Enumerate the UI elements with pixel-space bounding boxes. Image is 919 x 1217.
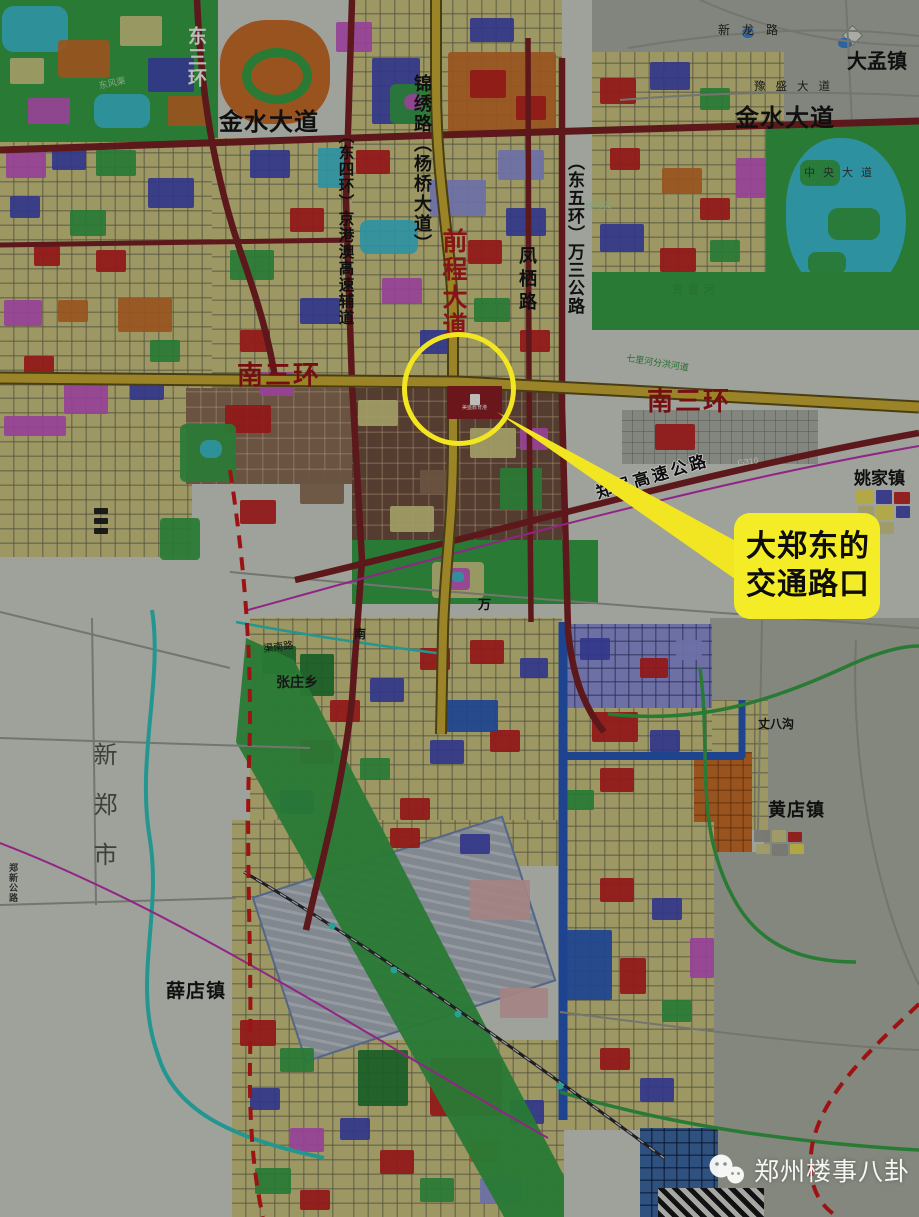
city-label-xinzheng: 新郑市 — [90, 742, 114, 892]
road-label-jinshui-east: 金水大道 — [735, 107, 835, 131]
map-roads — [0, 0, 919, 1217]
town-label-dameng: 大孟镇 — [847, 52, 907, 72]
arterial-roads — [0, 0, 919, 930]
blue-canals — [563, 622, 744, 1120]
road-label-east-third-ring: 东三环 — [186, 26, 205, 89]
zhengmin-expressway-road — [295, 433, 919, 580]
town-label-zhangzhuang: 张庄乡 — [276, 675, 318, 689]
char-label-nan: 南 — [354, 628, 366, 640]
town-label-yaojia: 姚家镇 — [854, 470, 905, 487]
minor-gray-roads — [0, 0, 919, 1050]
ditch-label-zhangba: 丈八沟 — [758, 718, 794, 730]
river-label-jialu: 贾鲁河 — [672, 285, 720, 296]
town-label-xuedian: 薛店镇 — [166, 982, 226, 1001]
road-label-jinxiu: 锦绣路（杨桥大道） — [413, 74, 431, 254]
town-label-huangdian: 黄店镇 — [768, 801, 825, 819]
road-label-central-ave: 中央大道 — [804, 168, 880, 179]
planning-map: 美盛教育港 东三环 金水大道 锦绣路（杨桥大道） （东四环）京港澳高速辅道 前程… — [0, 0, 919, 1217]
east-3rd-ring-road — [197, 0, 276, 384]
road-label-zhengxin: 郑新公路 — [8, 863, 17, 903]
char-label-wan: 万 — [478, 598, 491, 611]
road-label-jinggangao: （东四环）京港澳高速辅道 — [337, 128, 353, 326]
road-label-south-ring-west: 南三环 — [237, 362, 321, 388]
park-label-lvbo: 绿博园 — [585, 202, 612, 211]
project-logo-icon — [470, 394, 480, 405]
road-label-xinlong: 新龙路 — [718, 24, 790, 36]
road-label-wansan: （东五环）万三公路 — [566, 153, 583, 315]
map-screenshot: 美盛教育港 东三环 金水大道 锦绣路（杨桥大道） （东四环）京港澳高速辅道 前程… — [0, 0, 919, 1217]
road-label-south-ring-east: 南三环 — [647, 388, 731, 414]
road-label-yusheng: 豫盛大道 — [754, 82, 840, 94]
road-label-fengqi: 凤栖路 — [518, 246, 536, 315]
road-label-qiancheng: 前程大道 — [440, 228, 465, 340]
project-label: 美盛教育港 — [462, 406, 487, 411]
road-label-jinshui-west: 金水大道 — [219, 111, 319, 135]
green-rail-corridor — [236, 638, 564, 1217]
project-block: 美盛教育港 — [447, 386, 502, 419]
